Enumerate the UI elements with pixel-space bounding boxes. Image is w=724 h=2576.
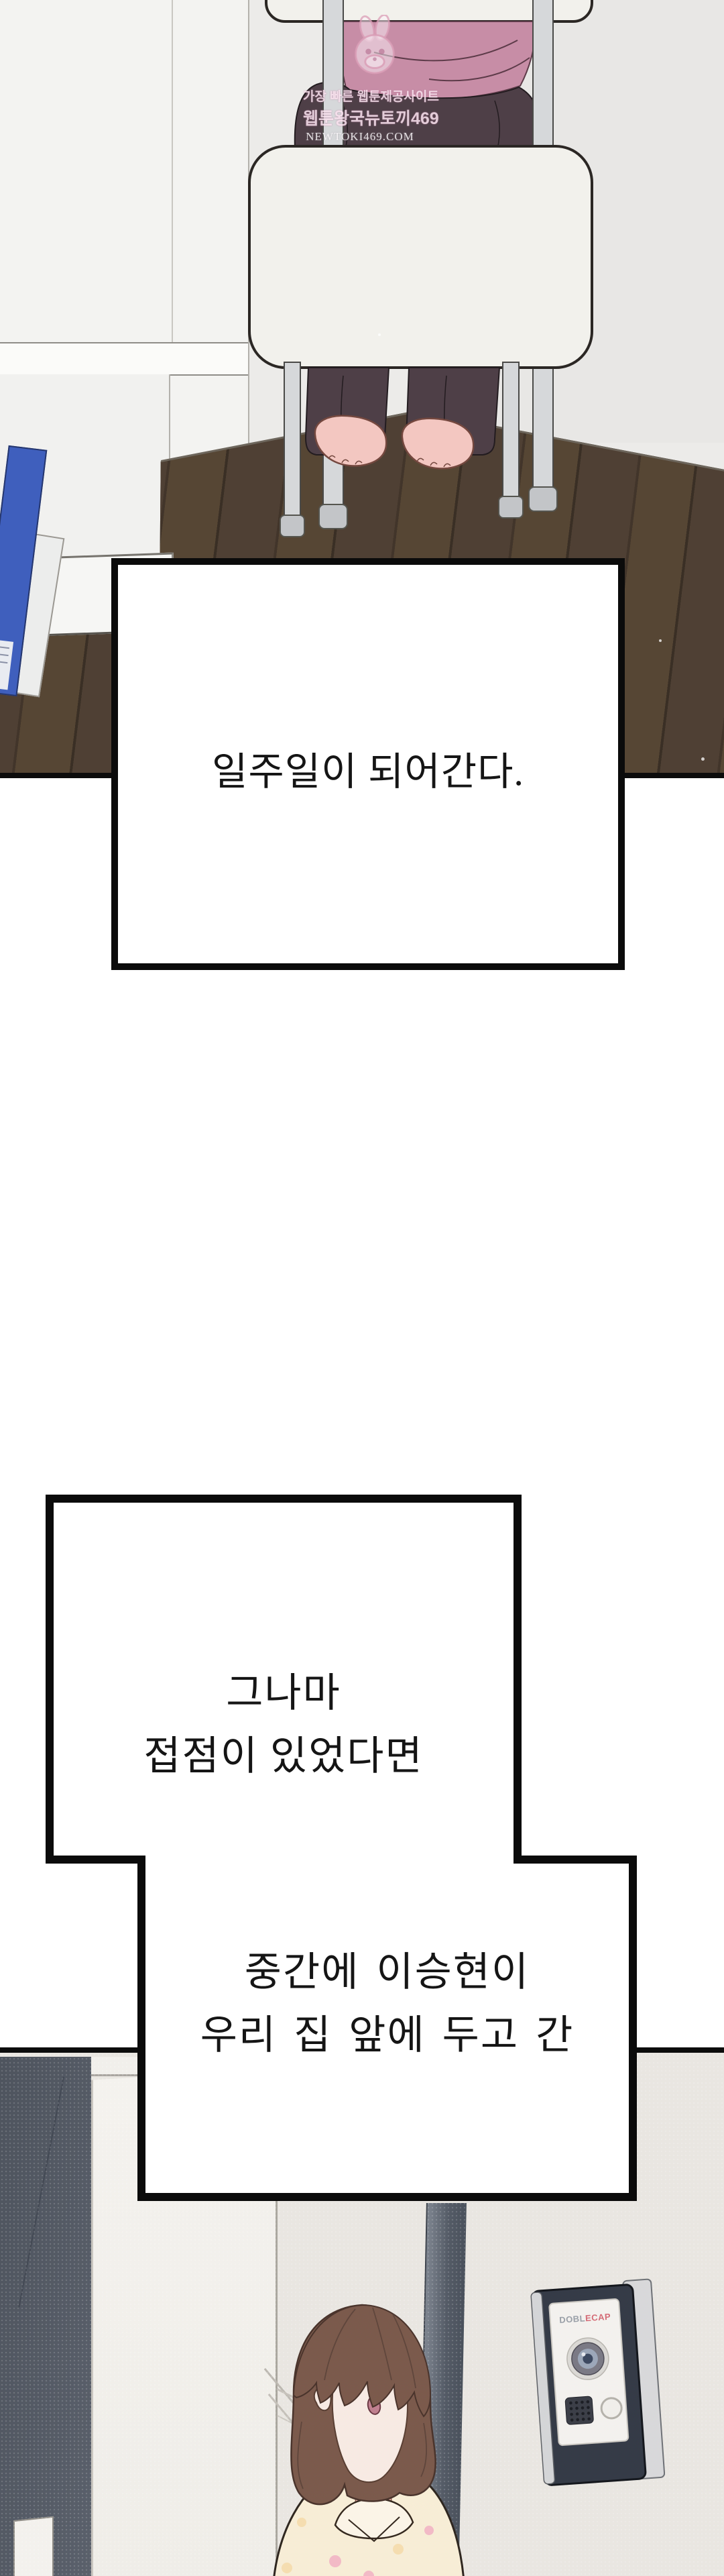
watermark-line-2: 웹툰왕국뉴토끼469 bbox=[303, 105, 417, 129]
chair-leg-cap-front-right bbox=[499, 496, 523, 518]
chair-seat-cushion bbox=[249, 146, 592, 368]
watermark-line-1: 가장 빠른 웹툰제공사이트 bbox=[303, 87, 417, 105]
narration-box-3-line-2: 우리 집 앞에 두고 간 bbox=[141, 2004, 633, 2067]
dust-speck bbox=[378, 333, 381, 336]
narration-box-1: 일주일이 되어간다. bbox=[111, 558, 625, 970]
narration-box-2-line-2: 접점이 있었다면 bbox=[50, 1725, 518, 1788]
desk-panel-seam bbox=[172, 0, 173, 343]
narration-box-23-outline bbox=[42, 1491, 641, 2205]
narration-box-3-line-1: 중간에 이승현이 bbox=[141, 1941, 633, 2004]
narration-box-2-line-1: 그나마 bbox=[50, 1662, 518, 1725]
webtoon-page: 가장 빠른 웹툰제공사이트 웹툰왕국뉴토끼469 NEWTOKI469.COM … bbox=[0, 0, 724, 2576]
chair-leg-cap-back-right bbox=[529, 487, 557, 511]
desk-top-edge bbox=[0, 342, 248, 376]
narration-box-3-text: 중간에 이승현이 우리 집 앞에 두고 간 bbox=[141, 1941, 633, 2067]
rabbit-mascot-icon bbox=[341, 15, 408, 85]
blue-book-label bbox=[0, 639, 13, 690]
chair-person-illustration bbox=[241, 0, 617, 590]
intercom-speaker-grille bbox=[565, 2396, 594, 2425]
intercom-panel: DOBLECAP bbox=[530, 2277, 670, 2499]
chair-front-leg-right bbox=[503, 362, 519, 502]
chair-leg-cap-back-left bbox=[319, 504, 347, 529]
person-foot-right bbox=[402, 419, 473, 469]
dust-speck bbox=[659, 639, 662, 642]
narration-box-2-text: 그나마 접점이 있었다면 bbox=[50, 1662, 518, 1788]
watermark-line-3: NEWTOKI469.COM bbox=[303, 130, 417, 144]
narration-box-1-text: 일주일이 되어간다. bbox=[118, 749, 618, 796]
intercom-call-button bbox=[601, 2398, 622, 2419]
woman-figure bbox=[255, 2294, 476, 2576]
dust-speck bbox=[701, 757, 705, 761]
chair-leg-cap-front-left bbox=[280, 515, 304, 537]
chair-front-leg-left bbox=[284, 362, 300, 521]
site-watermark: 가장 빠른 웹툰제공사이트 웹툰왕국뉴토끼469 NEWTOKI469.COM bbox=[303, 15, 417, 144]
